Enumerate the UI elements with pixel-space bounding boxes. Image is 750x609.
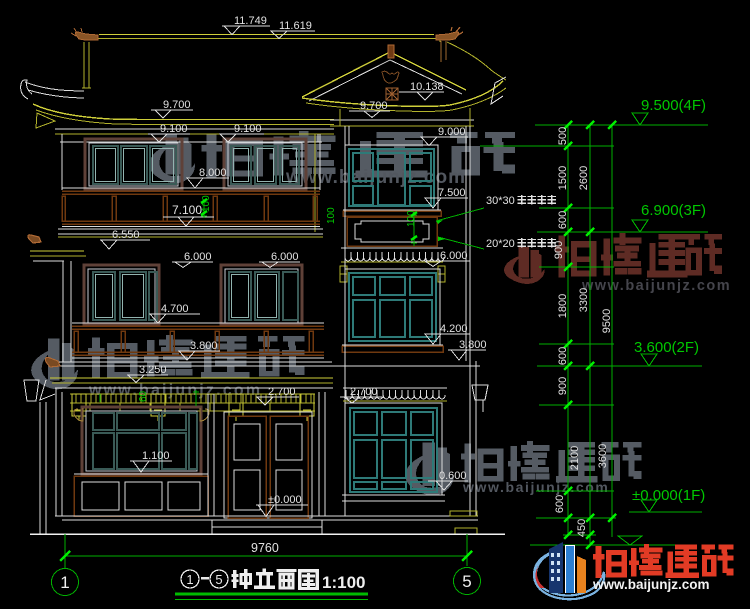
svg-text:4.200: 4.200 [440, 323, 468, 335]
svg-text:2100: 2100 [569, 446, 581, 470]
svg-text:±0.000(1F): ±0.000(1F) [632, 487, 705, 504]
svg-text:7.100: 7.100 [172, 203, 202, 217]
svg-text:1.100: 1.100 [142, 450, 170, 462]
svg-text:6.000: 6.000 [440, 250, 468, 262]
svg-text:3600: 3600 [597, 444, 609, 468]
svg-text:3.800: 3.800 [190, 340, 218, 352]
svg-text:www.baijunjz.com: www.baijunjz.com [462, 479, 609, 495]
svg-text:11.619: 11.619 [279, 20, 312, 32]
svg-text:1800: 1800 [557, 294, 569, 318]
svg-text:100: 100 [326, 207, 337, 224]
svg-text:9.700: 9.700 [360, 100, 388, 112]
svg-text:±0.000: ±0.000 [268, 494, 302, 506]
svg-text:900: 900 [557, 377, 569, 395]
svg-text:0.600: 0.600 [439, 470, 467, 482]
svg-text:30*30: 30*30 [486, 195, 515, 207]
svg-text:www.baijunjz.com: www.baijunjz.com [285, 167, 466, 188]
svg-text:5: 5 [462, 572, 471, 591]
svg-text:6.000: 6.000 [271, 251, 299, 263]
svg-text:2.700: 2.700 [350, 386, 378, 398]
svg-text:9760: 9760 [251, 541, 279, 555]
svg-text:9.700: 9.700 [163, 99, 191, 111]
svg-text:2600: 2600 [578, 166, 590, 190]
svg-text:9.100: 9.100 [234, 123, 262, 135]
svg-text:3.800: 3.800 [459, 339, 487, 351]
svg-text:9.000: 9.000 [438, 126, 466, 138]
svg-text:www.baijunjz.com: www.baijunjz.com [592, 577, 710, 592]
svg-text:6.000: 6.000 [184, 251, 212, 263]
svg-text:www.baijunjz.com: www.baijunjz.com [581, 278, 731, 294]
svg-text:900: 900 [553, 241, 565, 259]
svg-text:2.700: 2.700 [268, 386, 296, 398]
svg-text:10.138: 10.138 [410, 81, 444, 93]
svg-text:600: 600 [557, 211, 569, 229]
svg-text:600: 600 [557, 347, 569, 365]
svg-text:1: 1 [186, 572, 193, 587]
svg-text:4.700: 4.700 [161, 303, 189, 315]
svg-text:9500: 9500 [601, 309, 613, 333]
svg-text:7.500: 7.500 [438, 187, 466, 199]
svg-text:20*20: 20*20 [486, 238, 515, 250]
svg-text:8.000: 8.000 [199, 167, 227, 179]
svg-text:600: 600 [554, 495, 566, 513]
svg-text:6.550: 6.550 [112, 229, 140, 241]
svg-text:450: 450 [576, 519, 588, 537]
svg-text:3300: 3300 [578, 288, 590, 312]
svg-text:9.500(4F): 9.500(4F) [641, 97, 706, 114]
svg-text:6.900(3F): 6.900(3F) [641, 202, 706, 219]
svg-text:3.600(2F): 3.600(2F) [634, 339, 699, 356]
svg-text:9.100: 9.100 [160, 123, 188, 135]
svg-text:500: 500 [557, 127, 569, 145]
svg-text:5: 5 [215, 572, 222, 587]
svg-text:3.250: 3.250 [139, 364, 167, 376]
svg-text:1500: 1500 [557, 166, 569, 190]
svg-text:1: 1 [60, 573, 69, 592]
svg-text:60: 60 [138, 390, 149, 402]
svg-text:1:100: 1:100 [322, 573, 365, 592]
svg-text:11.749: 11.749 [234, 15, 267, 27]
